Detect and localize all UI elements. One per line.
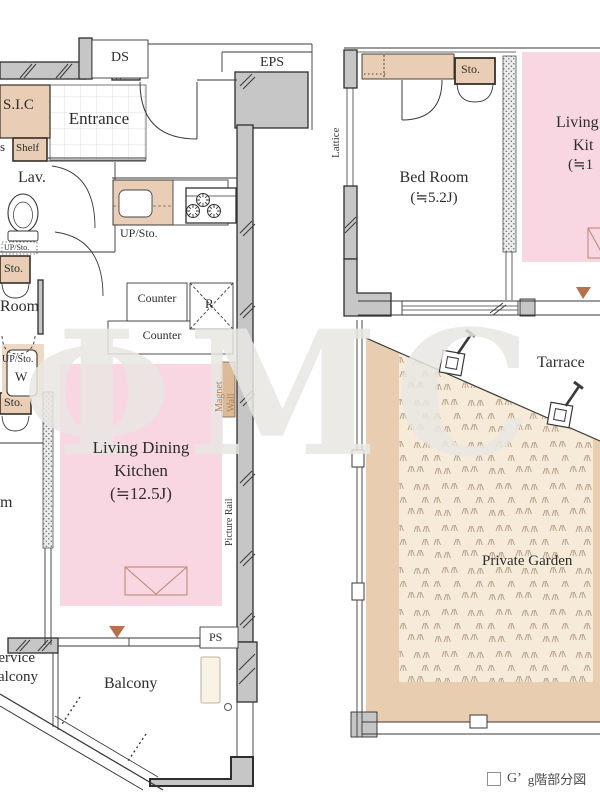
west-window-lines bbox=[347, 88, 353, 186]
entry-marker-triangle bbox=[109, 626, 125, 638]
ldk-right-line3-cut: (≒1 bbox=[568, 157, 593, 175]
toilet-icon bbox=[8, 194, 38, 232]
planter-icon bbox=[201, 657, 220, 703]
room-label-cut: Room bbox=[0, 298, 39, 317]
room-m-label-cut: m bbox=[0, 494, 12, 513]
ldk-label-block: Living Dining Kitchen (≒12.5J) bbox=[60, 437, 222, 506]
lavatory-label: Lav. bbox=[18, 169, 46, 188]
ldk-size: (≒12.5J) bbox=[60, 483, 222, 506]
ds-label: DS bbox=[94, 50, 146, 67]
louver-strip bbox=[503, 56, 516, 252]
shelf-label: Shelf bbox=[16, 142, 39, 155]
garden-spotlight-icon bbox=[547, 379, 584, 429]
ldk-line1: Living Dining bbox=[60, 437, 222, 460]
caption-text: g階部分図 bbox=[528, 769, 587, 788]
up-sto-w-label: UP/Sto. bbox=[2, 354, 33, 366]
balcony-window-band bbox=[58, 638, 200, 646]
terrace-label: Tarrace bbox=[537, 354, 585, 373]
magnet-wall-line1: Magnet bbox=[214, 381, 226, 412]
shoes-label-cut: s bbox=[0, 139, 5, 154]
floor-plan-page: ΦMC DS EPS S.I.C Entrance s Shelf Lav. U… bbox=[0, 0, 600, 800]
ldk-right-line2-cut: Kit bbox=[573, 137, 593, 156]
counter-upper-label: Counter bbox=[127, 291, 187, 305]
balcony-diagonal-wall bbox=[0, 694, 163, 790]
caption-unit-type: G’ bbox=[507, 771, 522, 787]
bedroom-door bbox=[402, 80, 442, 120]
sic-label: S.I.C bbox=[3, 97, 34, 115]
bedroom-name: Bed Room bbox=[363, 168, 505, 189]
washer-label: W bbox=[15, 369, 27, 384]
service-balcony-line2: Balcony bbox=[0, 669, 38, 687]
counter-lower-label: Counter bbox=[132, 328, 192, 342]
service-balcony-line1: Service bbox=[0, 650, 35, 668]
up-sto-lav-label: UP/Sto. bbox=[4, 243, 29, 252]
magnet-wall-label: Magnet Wall bbox=[214, 381, 238, 412]
storage-upper-label: Sto. bbox=[4, 261, 23, 275]
refrigerator-label: R bbox=[205, 296, 214, 311]
magnet-wall-line2: Wall bbox=[226, 381, 238, 412]
picture-rail-label: Picture Rail bbox=[224, 499, 236, 547]
private-garden-label: Private Garden bbox=[482, 553, 572, 571]
eps-label: EPS bbox=[240, 55, 304, 72]
ldk-line2: Kitchen bbox=[60, 460, 222, 483]
balcony-label: Balcony bbox=[104, 675, 157, 694]
entrance-label: Entrance bbox=[54, 109, 144, 129]
lattice-label: Lattice bbox=[330, 127, 343, 158]
sink-icon bbox=[119, 190, 152, 217]
storage-right-label: Sto. bbox=[461, 62, 480, 76]
storage-lower-label: Sto. bbox=[4, 395, 23, 409]
right-outer-lines bbox=[344, 48, 600, 52]
bedroom-size: (≒5.2J) bbox=[363, 189, 505, 209]
drain-icon bbox=[225, 704, 232, 711]
caption: G’ g階部分図 bbox=[487, 769, 586, 788]
up-sto-kitchen-label: UP/Sto. bbox=[120, 226, 158, 240]
entry-marker-triangle-right bbox=[576, 287, 591, 299]
bedroom-label-block: Bed Room (≒5.2J) bbox=[363, 168, 505, 208]
ps-label: PS bbox=[209, 630, 222, 644]
ldk-right-line1-cut: Living bbox=[556, 114, 599, 133]
legend-swatch-icon bbox=[487, 772, 501, 786]
